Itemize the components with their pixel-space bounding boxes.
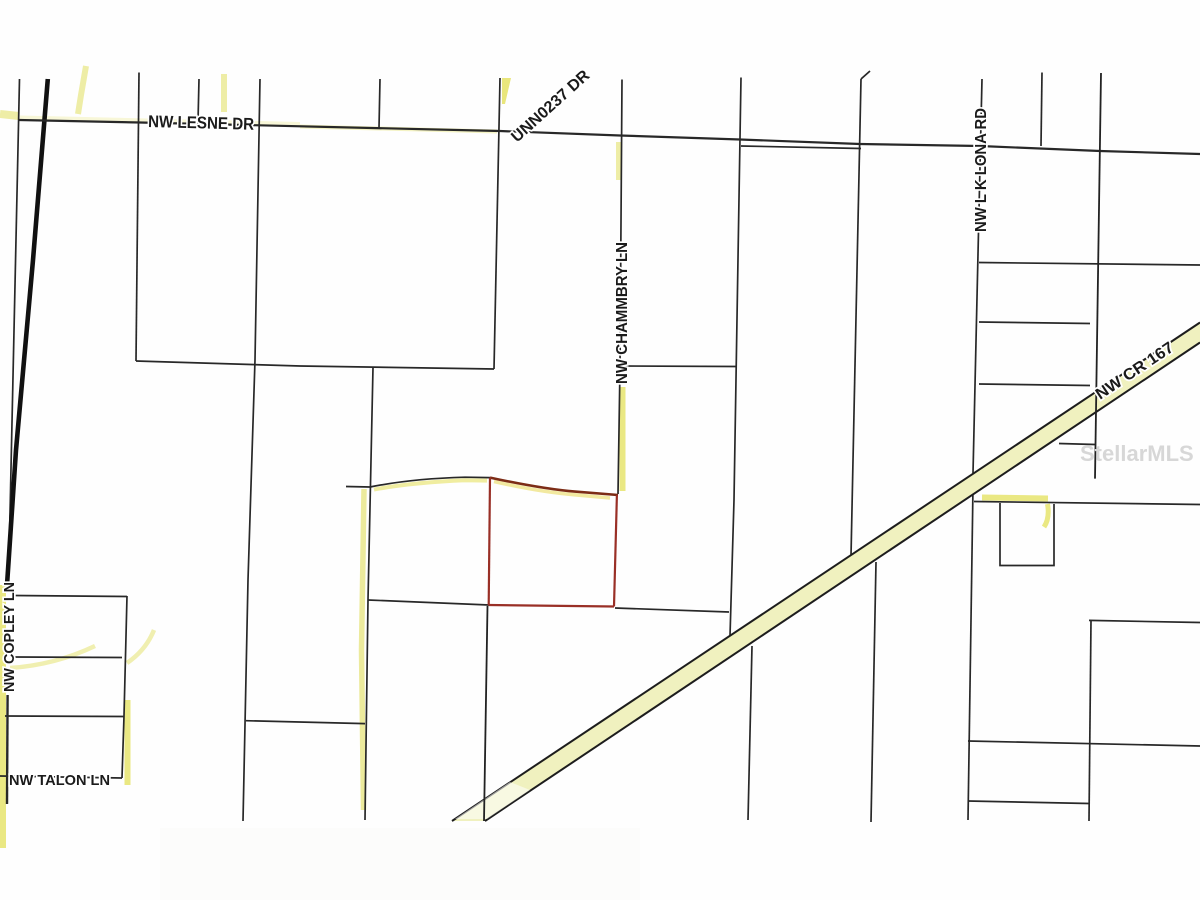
- svg-text:NW L K LONA RD: NW L K LONA RD: [973, 108, 990, 232]
- svg-text:NW LESNE DR: NW LESNE DR: [148, 112, 254, 134]
- svg-text:NW CHAMMBRY LN: NW CHAMMBRY LN: [614, 242, 631, 384]
- svg-text:NW TALON LN: NW TALON LN: [9, 772, 110, 789]
- svg-text:NW COPLEY LN: NW COPLEY LN: [1, 582, 18, 692]
- svg-text:StellarMLS: StellarMLS: [1080, 441, 1194, 466]
